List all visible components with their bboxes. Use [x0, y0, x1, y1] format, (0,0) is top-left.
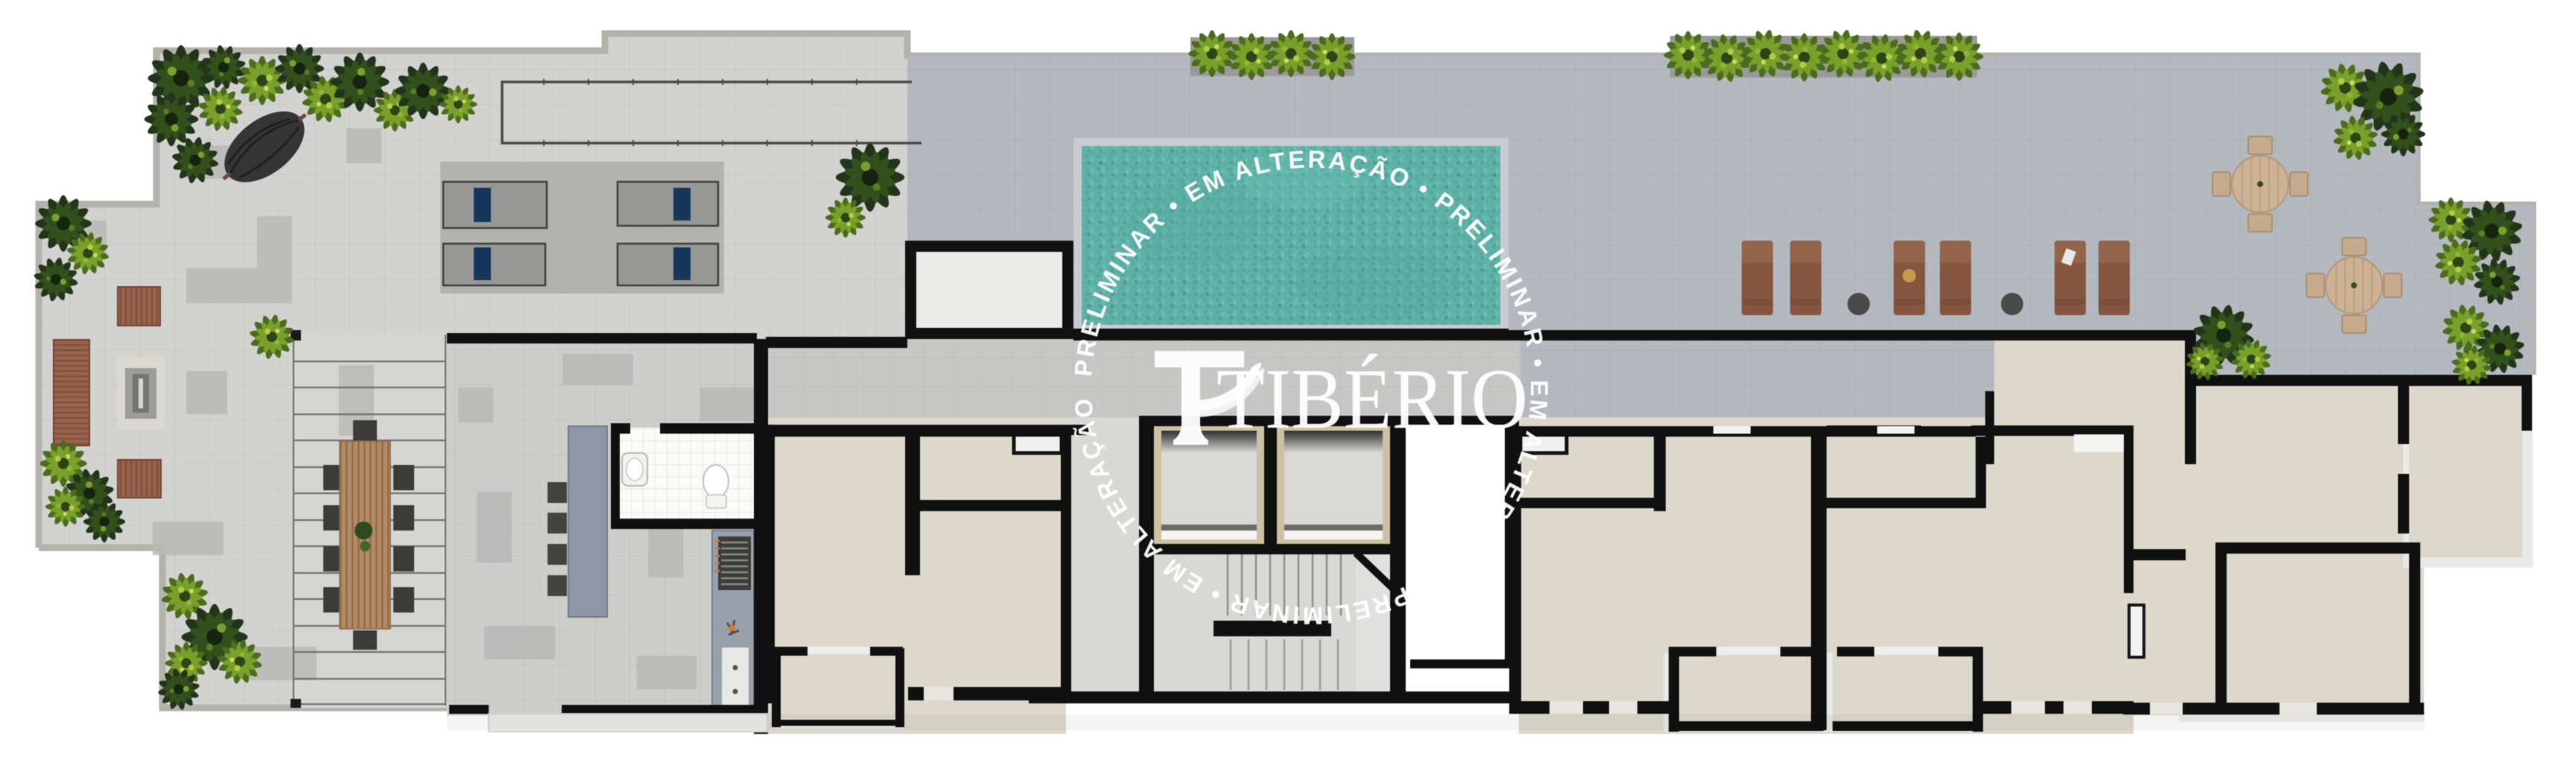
svg-text:TIBÉRIO: TIBÉRIO — [1216, 352, 1528, 447]
